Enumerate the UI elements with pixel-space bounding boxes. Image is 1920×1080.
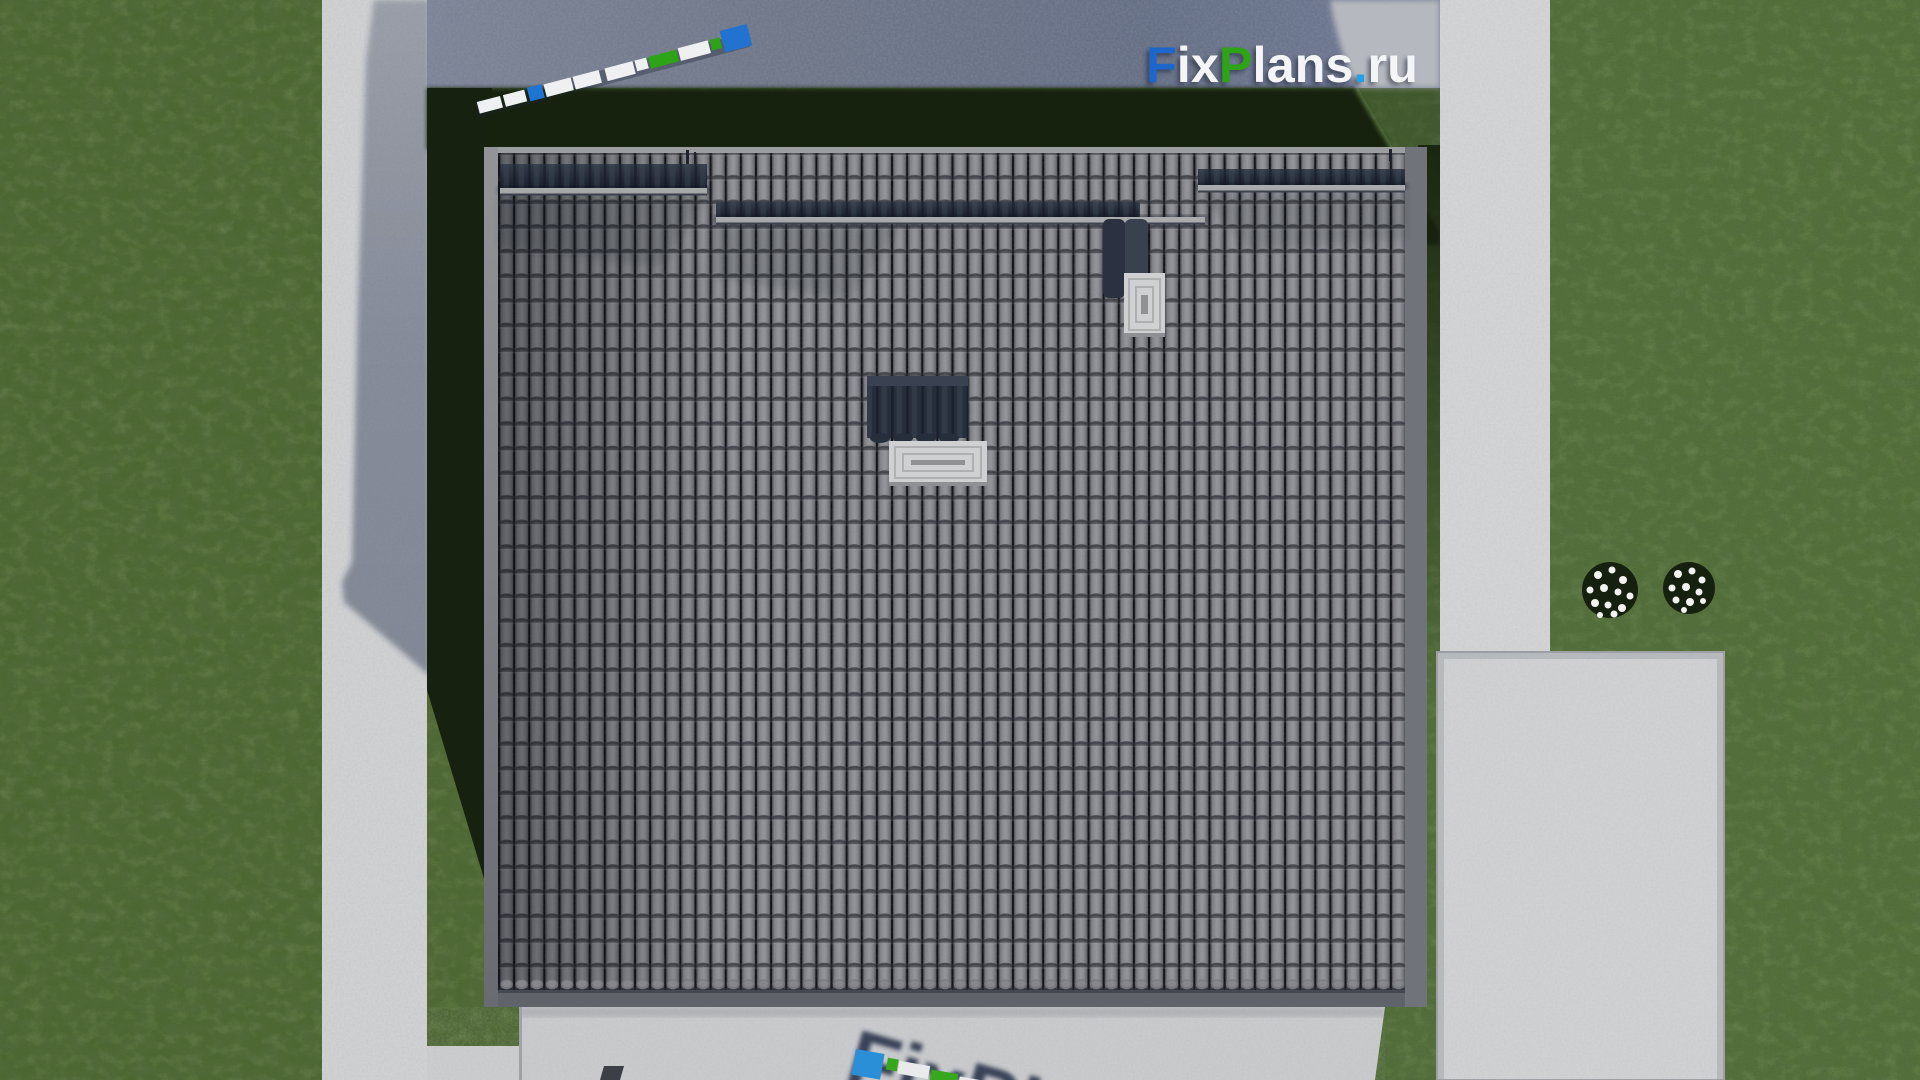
svg-text:FixPlans.ru: FixPlans.ru — [1146, 37, 1418, 93]
